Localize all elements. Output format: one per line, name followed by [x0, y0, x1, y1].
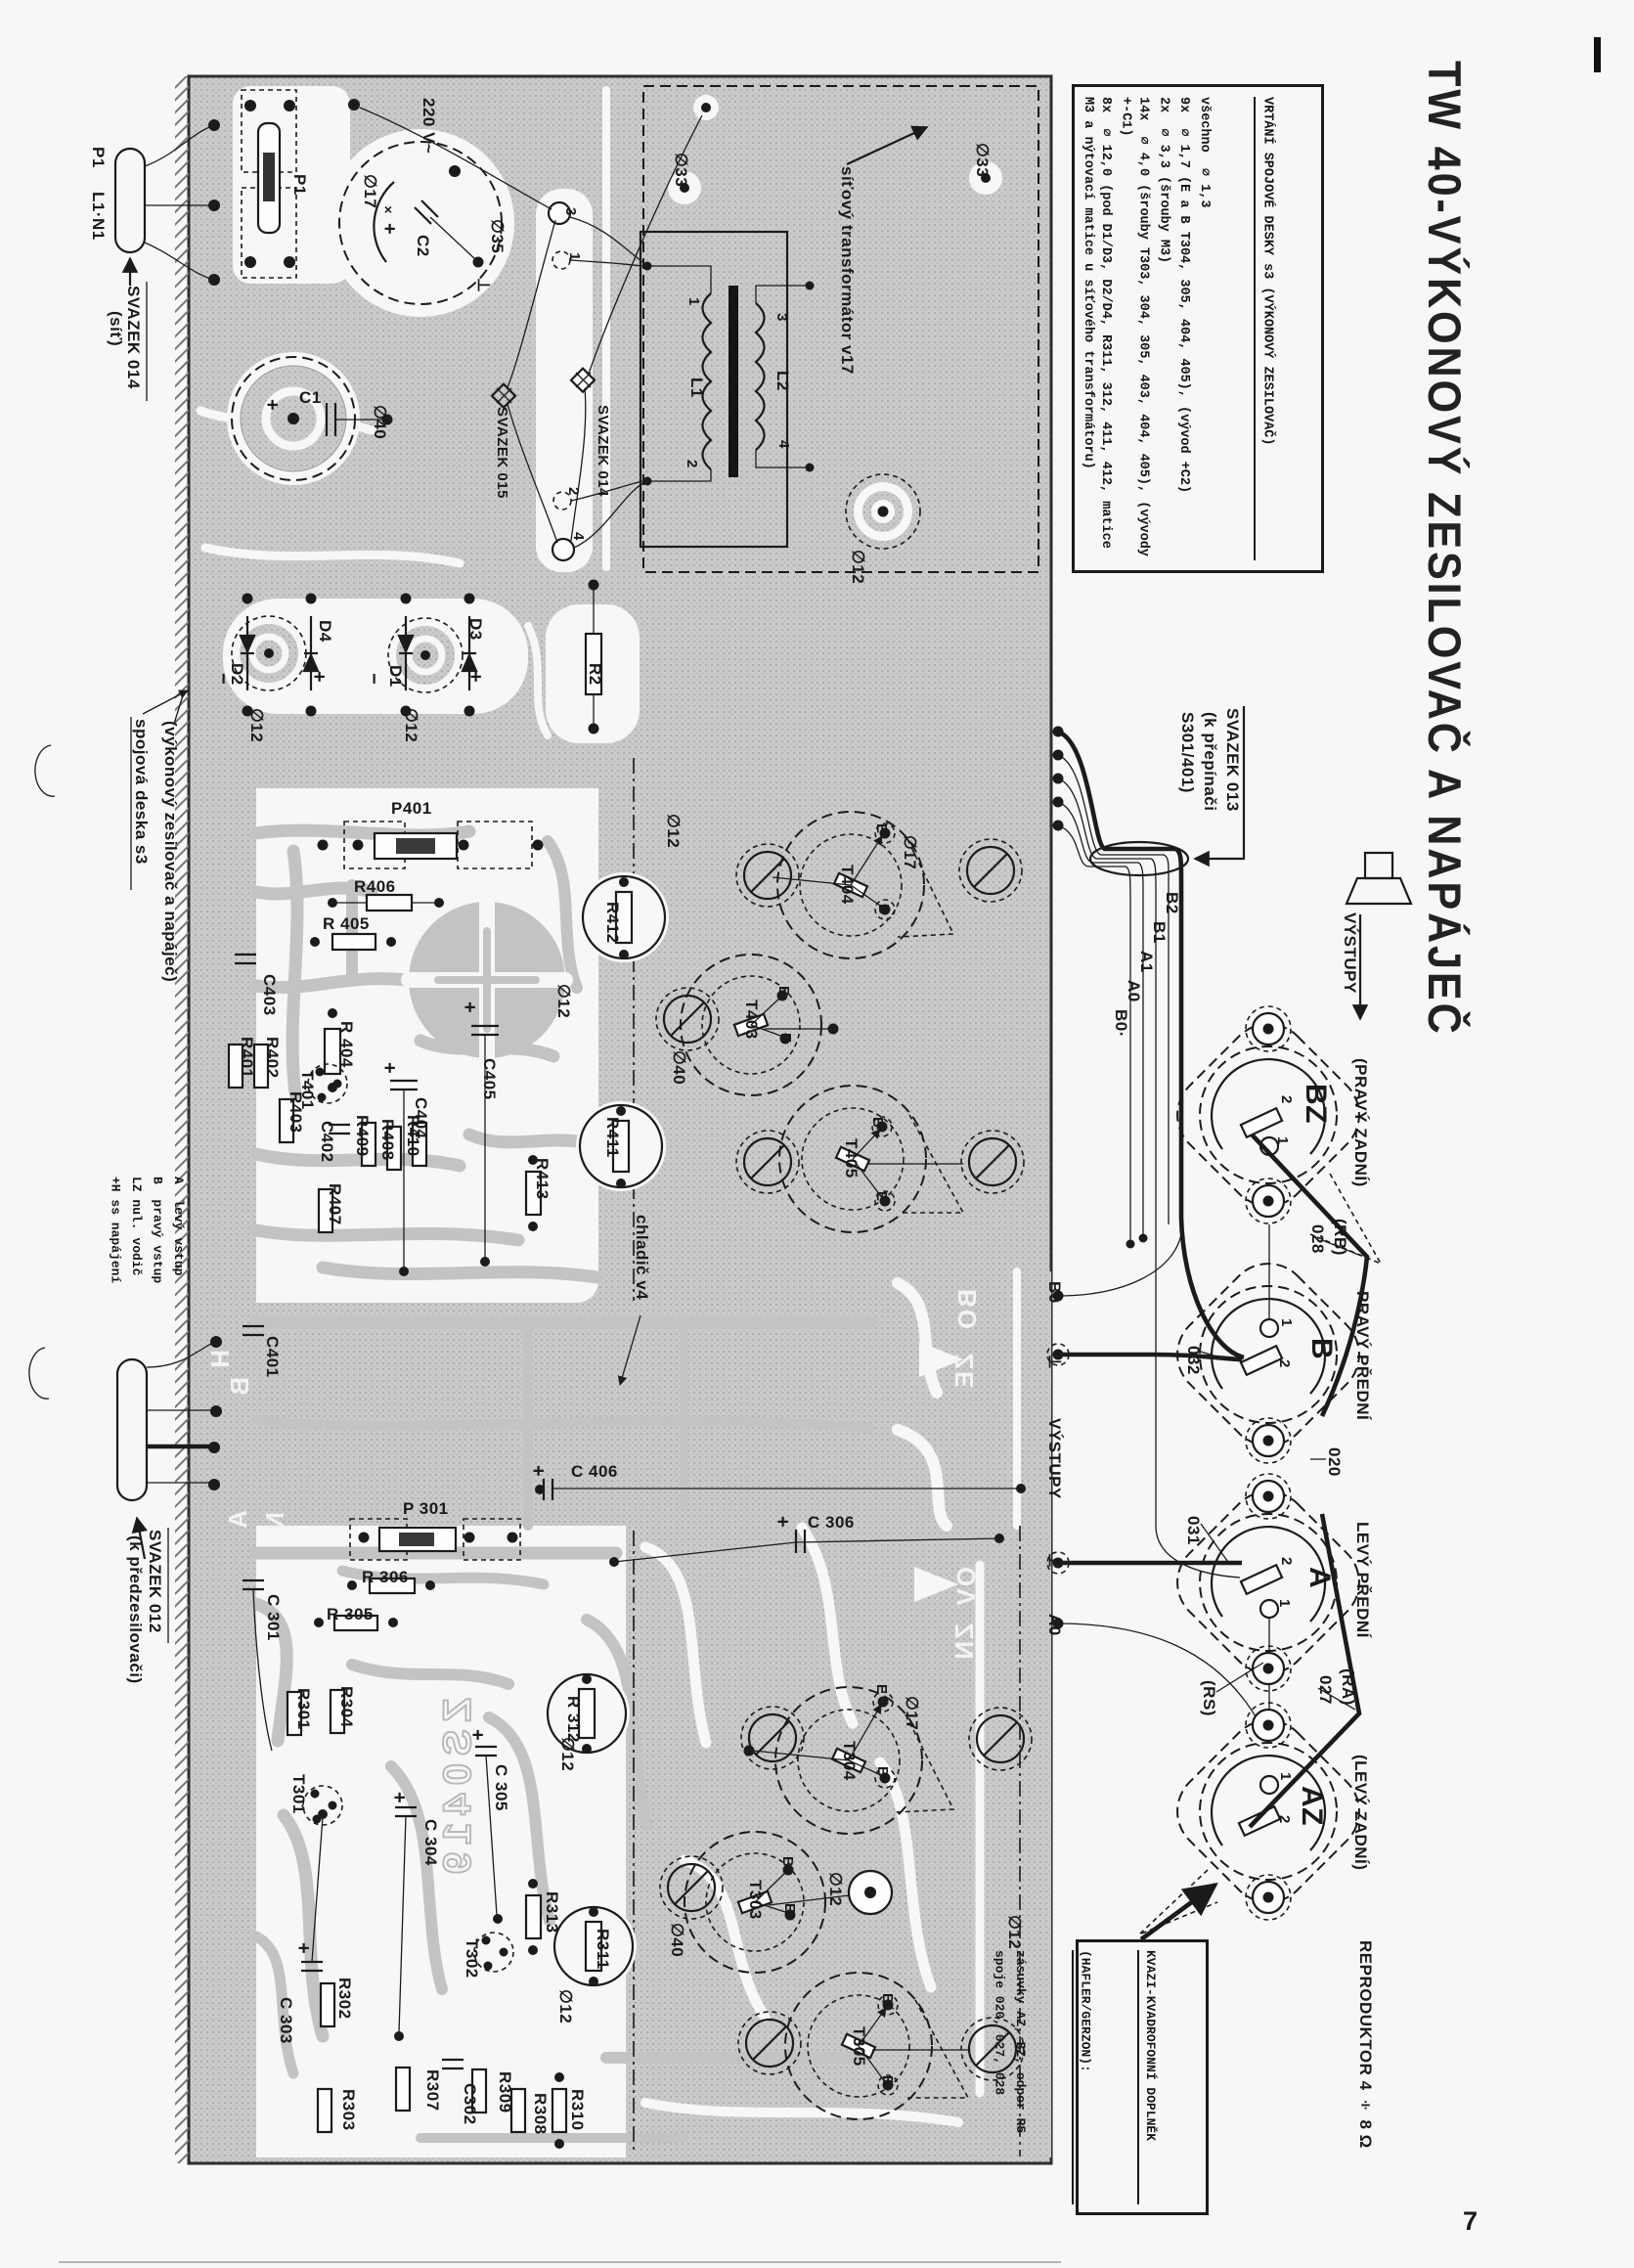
copper-etch-code: ZS0419	[438, 1698, 477, 1882]
pos-levy-predni: LEVÝ PŘEDNÍ	[1354, 1522, 1371, 1638]
label--33: ∅33	[673, 153, 689, 187]
label-r412: R412	[604, 902, 621, 944]
label-d1: D1	[387, 665, 404, 688]
label-1: 1	[1277, 1599, 1292, 1608]
label-031: 031	[1185, 1516, 1202, 1545]
label-r307: R307	[424, 2069, 441, 2112]
label-t305: T305	[851, 2026, 867, 2067]
label--12: ∅12	[827, 1872, 844, 1906]
wire-label-l1n1: L1·N1	[90, 192, 107, 241]
label-b: B	[870, 1117, 885, 1128]
label--: ×	[381, 201, 395, 218]
conn-bz: BZ	[1301, 1084, 1330, 1124]
legend-item: A levý vstup	[169, 1177, 189, 1351]
label-ze: ZE	[951, 1354, 977, 1390]
label-b: B	[876, 904, 891, 914]
pcb-drawing	[0, 0, 1634, 2268]
label-r2: R2	[587, 663, 603, 686]
drill-row: 14x ∅ 4,0 (šrouby T303, 304, 305, 403, 4…	[1117, 97, 1152, 560]
label-1: 1	[1279, 1318, 1294, 1327]
board-name-sub: (výkonový zesilovač a napáječ)	[162, 721, 179, 982]
label-c405: C405	[481, 1058, 498, 1100]
drill-row: všechno ∅ 1,3	[1195, 97, 1213, 560]
quadro-note-box: KVAZI-KVADROFONNÍ DOPLNĚK (HAFLER/GERZON…	[1076, 1939, 1209, 2215]
label-e: E	[874, 1684, 889, 1695]
label-a: A	[225, 1510, 250, 1531]
label-2: 2	[685, 460, 699, 468]
label-e: E	[880, 2075, 895, 2086]
label--40: ∅40	[669, 1923, 685, 1957]
label-svazek-015: SVAZEK 015	[495, 407, 509, 499]
label-c302: C302	[462, 2083, 478, 2125]
label-svazek-014: SVAZEK 014	[596, 405, 610, 497]
label-l1: L1	[688, 378, 705, 398]
pos-levy-zadni: (LEVÝ ZADNÍ)	[1352, 1755, 1369, 1870]
svazek-013: SVAZEK 013	[1224, 708, 1241, 812]
heatsink-label: chladič v4	[634, 1215, 650, 1300]
transformer-label: síťový transformátor v17	[839, 166, 856, 375]
label-1: 1	[1278, 1772, 1293, 1781]
label--: +	[309, 671, 329, 683]
label-r308: R308	[532, 2093, 549, 2135]
label-4: 4	[571, 532, 586, 541]
label--12: ∅12	[555, 984, 572, 1018]
label-r302: R302	[336, 1978, 353, 2020]
svazek-013-sub2: S301/401)	[1179, 712, 1196, 793]
label-c-303: C 303	[278, 1997, 294, 2044]
legend-item: +H ss napájení	[106, 1177, 125, 1351]
label--12: ∅12	[403, 708, 420, 742]
label-t303: T303	[747, 1880, 764, 1920]
drill-row: 8x ∅ 12,0 (pod D1/D3, D2/D4, R311, 312, …	[1079, 97, 1114, 560]
scanned-page: TW 40-VÝKONOVÝ ZESILOVAČ A NAPÁJEČ VRTÁN…	[0, 0, 1634, 2268]
board-name: spojová deska s3	[133, 719, 150, 865]
label-r413: R413	[534, 1158, 551, 1200]
conn-b: B	[1306, 1338, 1336, 1359]
label-r-305: R 305	[327, 1606, 374, 1623]
label-c402: C402	[319, 1121, 335, 1163]
socket-b	[1161, 1224, 1377, 1463]
label-c1: C1	[299, 389, 322, 406]
label-1: 1	[686, 297, 701, 306]
label-t403: T403	[743, 1000, 760, 1040]
label-e: E	[778, 1033, 793, 1044]
label-c-306: C 306	[808, 1514, 855, 1531]
label--: −	[213, 673, 233, 685]
label-r311: R311	[595, 1929, 611, 1970]
label-d4: D4	[317, 620, 333, 643]
label-r-404: R 404	[338, 1021, 355, 1068]
label-t401: T401	[299, 1070, 316, 1110]
quadro-pointer	[1141, 1885, 1215, 1939]
input-pin-legend: A levý vstupB pravý vstupLZ nul. vodič+H…	[96, 1177, 190, 1351]
conn-az: AZ	[1297, 1786, 1326, 1826]
label-2: 2	[1277, 1815, 1292, 1824]
label--: +	[293, 1942, 313, 1954]
label--ra-: (RA)	[1340, 1668, 1356, 1706]
svazek-014-sit: SVAZEK 014	[125, 286, 142, 389]
vystupy-board: VÝSTUPY	[1046, 1418, 1063, 1499]
label-b0: B0	[1046, 1281, 1063, 1304]
label--40: ∅40	[671, 1050, 687, 1085]
legend-item: LZ nul. vodič	[127, 1177, 147, 1351]
label-020: 020	[1326, 1447, 1343, 1477]
label--: +	[465, 671, 485, 683]
drill-info-box: VRTÁNÍ SPOJOVÉ DESKY s3 (VÝKONOVÝ ZESILO…	[1072, 84, 1324, 573]
label-n: N	[262, 1512, 287, 1533]
label-4: 4	[776, 440, 791, 449]
label--: ⊥	[1046, 1355, 1063, 1369]
label-r303: R303	[340, 2089, 357, 2131]
label--: ⊥	[1046, 1553, 1063, 1568]
legend-item: B pravý vstup	[148, 1177, 167, 1351]
label-bo: BO	[954, 1289, 980, 1331]
label--: +	[389, 1792, 409, 1803]
label--: −	[364, 673, 383, 685]
quadro-line: zásuvky AZ, BZ, odpor R5	[1011, 1950, 1031, 2204]
label-b: B	[227, 1377, 252, 1398]
label-r309: R309	[497, 2071, 513, 2113]
label--rs-: (RS)	[1201, 1680, 1217, 1716]
label--17: ∅17	[904, 1696, 920, 1730]
label-r409: R409	[354, 1115, 371, 1157]
label-2: 2	[1279, 1095, 1294, 1104]
label--40: ∅40	[372, 405, 388, 439]
label-r408: R408	[379, 1119, 396, 1161]
label-r411: R411	[604, 1117, 621, 1158]
label-1: 1	[1275, 1136, 1290, 1145]
label-c-301: C 301	[265, 1594, 282, 1641]
label--12: ∅12	[665, 814, 682, 848]
label--17: ∅17	[902, 835, 918, 869]
label--: +	[528, 1465, 548, 1477]
label-e: E	[782, 1903, 797, 1914]
label--12: ∅12	[1006, 1915, 1023, 1949]
svazek-012: SVAZEK 012	[147, 1530, 163, 1633]
label-220-v-: 220 V~	[420, 98, 437, 154]
label-r-405: R 405	[323, 915, 370, 932]
label-a0: A0	[1126, 980, 1142, 1002]
label-h: H	[207, 1350, 233, 1370]
label-r401: R401	[239, 1037, 255, 1079]
label--12: ∅12	[557, 1989, 574, 2023]
quadro-line: spoje 020, 027, 028	[990, 1950, 1009, 2204]
label--: +	[262, 399, 282, 411]
label-r406: R406	[354, 878, 396, 895]
label--: +	[379, 1062, 399, 1074]
label-t405: T405	[843, 1138, 860, 1178]
pos-pravy-zadni: (PRAVÝ ZADNÍ)	[1352, 1058, 1369, 1187]
label-a1: A1	[1138, 951, 1155, 973]
label-r-306: R 306	[362, 1569, 409, 1585]
label-p401: P401	[391, 800, 432, 817]
label--33: ∅33	[974, 143, 991, 177]
label-b: B	[780, 1856, 795, 1867]
svazek-014-sit-sub: (síť)	[108, 311, 124, 346]
label-b: B	[875, 1766, 890, 1777]
page-title: TW 40-VÝKONOVÝ ZESILOVAČ A NAPÁJEČ	[1418, 61, 1472, 1037]
label-l2: L2	[774, 371, 791, 391]
label-c-406: C 406	[571, 1463, 618, 1480]
label-2: 2	[1279, 1557, 1294, 1566]
label-b2: B2	[1164, 892, 1180, 914]
label-r407: R407	[327, 1183, 343, 1225]
label-c401: C401	[264, 1336, 281, 1378]
conn-a: A	[1304, 1567, 1334, 1588]
svazek-012-sub: (k předzesilovači)	[127, 1535, 144, 1684]
label-e: E	[874, 1191, 889, 1202]
vystupy-right: VÝSTUPY	[1342, 912, 1358, 994]
label--12: ∅12	[248, 708, 265, 742]
label-027: 027	[1317, 1675, 1334, 1705]
label-b0-: B0·	[1113, 1009, 1129, 1038]
wire-label-p1: P1	[90, 147, 107, 168]
label--: +	[773, 1516, 792, 1528]
label--: +	[460, 1001, 479, 1013]
drill-row: 2x ∅ 3,3 (šrouby M3)	[1155, 97, 1172, 560]
label-r402: R402	[264, 1037, 281, 1079]
label-r-312: R 312	[565, 1696, 582, 1743]
drill-row: 9x ∅ 1,7 (E a B T304, 305, 404, 405), (v…	[1174, 97, 1192, 560]
label-zn: ZN	[951, 1623, 977, 1662]
label-032: 032	[1185, 1346, 1202, 1375]
page-number: 7	[1463, 2206, 1478, 2237]
label--rb-: (RB)	[1332, 1219, 1348, 1256]
label-3: 3	[774, 313, 789, 322]
label-r304: R304	[338, 1686, 355, 1728]
label--12: ∅12	[850, 550, 866, 584]
quadro-subtitle: (HAFLER/GERZON):	[1072, 1950, 1095, 2204]
label-3: 3	[563, 207, 578, 216]
label-r301: R301	[295, 1688, 312, 1730]
label-p1: P1	[291, 174, 308, 196]
drill-info-title: VRTÁNÍ SPOJOVÉ DESKY s3 (VÝKONOVÝ ZESILO…	[1254, 97, 1276, 560]
svazek-013-sub1: (k přepínači	[1202, 712, 1218, 811]
label-c2: C2	[415, 235, 431, 257]
label-ov: OV	[953, 1567, 979, 1608]
label-e: E	[874, 823, 889, 834]
label-t302: T302	[464, 1938, 480, 1979]
label-c-305: C 305	[493, 1764, 509, 1811]
label-p-301: P 301	[403, 1500, 449, 1517]
label-a0: A0	[1046, 1614, 1063, 1636]
pos-pravy-predni: PRAVÝ PŘEDNÍ	[1354, 1291, 1371, 1420]
speaker-note: REPRODUKTOR 4 ÷ 8 Ω	[1357, 1940, 1374, 2149]
label-b: B	[880, 1993, 895, 2004]
label-028: 028	[1309, 1224, 1326, 1254]
label-r313: R313	[544, 1891, 560, 1934]
speaker-sockets	[1139, 1006, 1381, 1934]
svazek013-bundle	[1053, 706, 1245, 1578]
label--17: ∅17	[362, 174, 378, 208]
label-t404: T404	[839, 865, 856, 905]
label-t304: T304	[841, 1741, 858, 1781]
label--: +	[379, 223, 399, 235]
label-d3: D3	[467, 618, 484, 641]
label--: ⊥	[475, 278, 492, 292]
quadro-title: KVAZI-KVADROFONNÍ DOPLNĚK	[1137, 1950, 1161, 2204]
label-2: 2	[1277, 1359, 1292, 1368]
label-r310: R310	[569, 2089, 586, 2131]
label-b1: B1	[1151, 921, 1168, 944]
label-c403: C403	[261, 974, 278, 1016]
label-r410: R410	[405, 1115, 421, 1157]
label-1: 1	[567, 252, 582, 261]
label-b: B	[776, 986, 791, 997]
label-t301: T301	[290, 1774, 307, 1814]
label-2: 2	[566, 487, 581, 496]
label--35: ∅35	[489, 219, 506, 253]
